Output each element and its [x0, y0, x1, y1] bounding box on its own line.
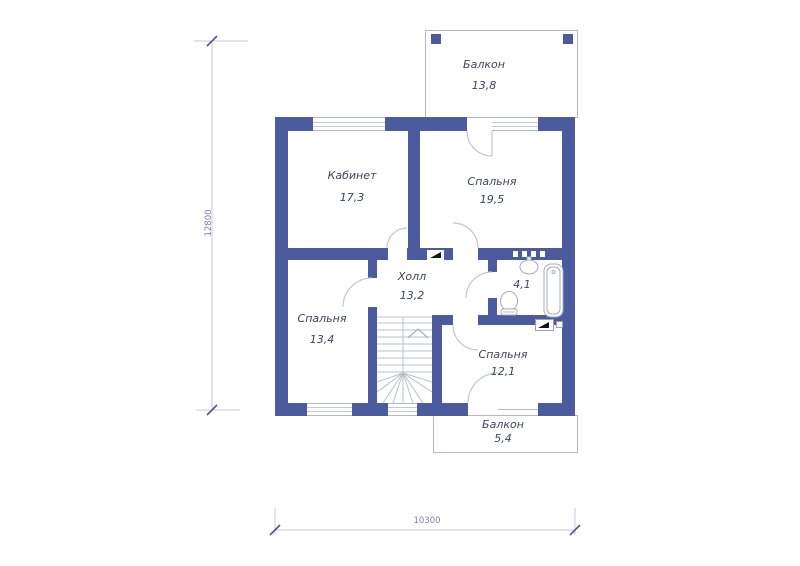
- glassblock-window: [522, 251, 527, 257]
- window-bottom-stairs: [388, 403, 417, 416]
- wall-study-bedroom1: [408, 131, 420, 248]
- window-bottom-bedroom3: [498, 409, 538, 410]
- glassblock-window: [540, 251, 545, 257]
- room-area-hall: 13,2: [367, 290, 457, 302]
- room-area-balcony-top: 13,8: [439, 80, 529, 92]
- wall-bottom: [352, 403, 388, 416]
- stairs-up-icon: [377, 317, 432, 403]
- room-label-bedroom1: Спальня: [447, 176, 537, 188]
- wall-bathroom-left: [488, 260, 497, 272]
- room-area-balcony-bottom: 5,4: [458, 433, 548, 445]
- room-label-bedroom2: Спальня: [277, 313, 367, 325]
- room-area-study: 17,3: [307, 192, 397, 204]
- wall-right: [562, 117, 575, 416]
- wall-left: [275, 117, 288, 416]
- balcony-post: [563, 34, 573, 44]
- wall-mid-horizontal: [478, 248, 562, 260]
- dimension-label-horizontal: 10300: [407, 516, 447, 526]
- wall-bottom: [275, 403, 307, 416]
- room-label-bedroom3: Спальня: [458, 349, 548, 361]
- wall-bottom: [417, 403, 468, 416]
- room-label-balcony-top: Балкон: [439, 59, 529, 71]
- vent-box: [427, 250, 444, 261]
- vent-box: [535, 319, 554, 331]
- window-top-bedroom1: [492, 117, 538, 131]
- dimension-label-vertical: 12800: [204, 203, 214, 243]
- glassblock-window: [513, 251, 518, 257]
- room-area-bedroom2: 13,4: [277, 334, 367, 346]
- room-area-bathroom: 4,1: [477, 279, 567, 291]
- wall-mid-horizontal: [275, 248, 388, 260]
- room-label-study: Кабинет: [307, 170, 397, 182]
- floor-plan: Балкон 13,8 Кабинет 17,3 Спальня 19,5 Хо…: [0, 0, 800, 566]
- wall-stairs-left: [368, 307, 377, 403]
- glassblock-window: [531, 251, 536, 257]
- room-label-balcony-bottom: Балкон: [458, 419, 548, 431]
- wall-bottom: [538, 403, 575, 416]
- window-bottom-bedroom2: [307, 403, 352, 416]
- door-arc-bedroom1: [453, 223, 478, 248]
- room-area-bedroom1: 19,5: [447, 194, 537, 206]
- room-label-hall: Холл: [367, 271, 457, 283]
- balcony-top-outline: [425, 30, 578, 118]
- toilet-icon: [501, 292, 518, 316]
- door-arc-balcony-top: [467, 131, 492, 156]
- wall-top: [385, 117, 467, 131]
- window-top-study: [313, 117, 385, 131]
- door-arc-bedroom3: [453, 325, 478, 350]
- door-arc-study: [387, 228, 407, 248]
- balcony-post: [431, 34, 441, 44]
- wall-stairs-right: [432, 315, 442, 403]
- dimension-line-vertical: [194, 36, 248, 415]
- vent-grille: [556, 321, 563, 328]
- room-area-bedroom3: 12,1: [458, 366, 548, 378]
